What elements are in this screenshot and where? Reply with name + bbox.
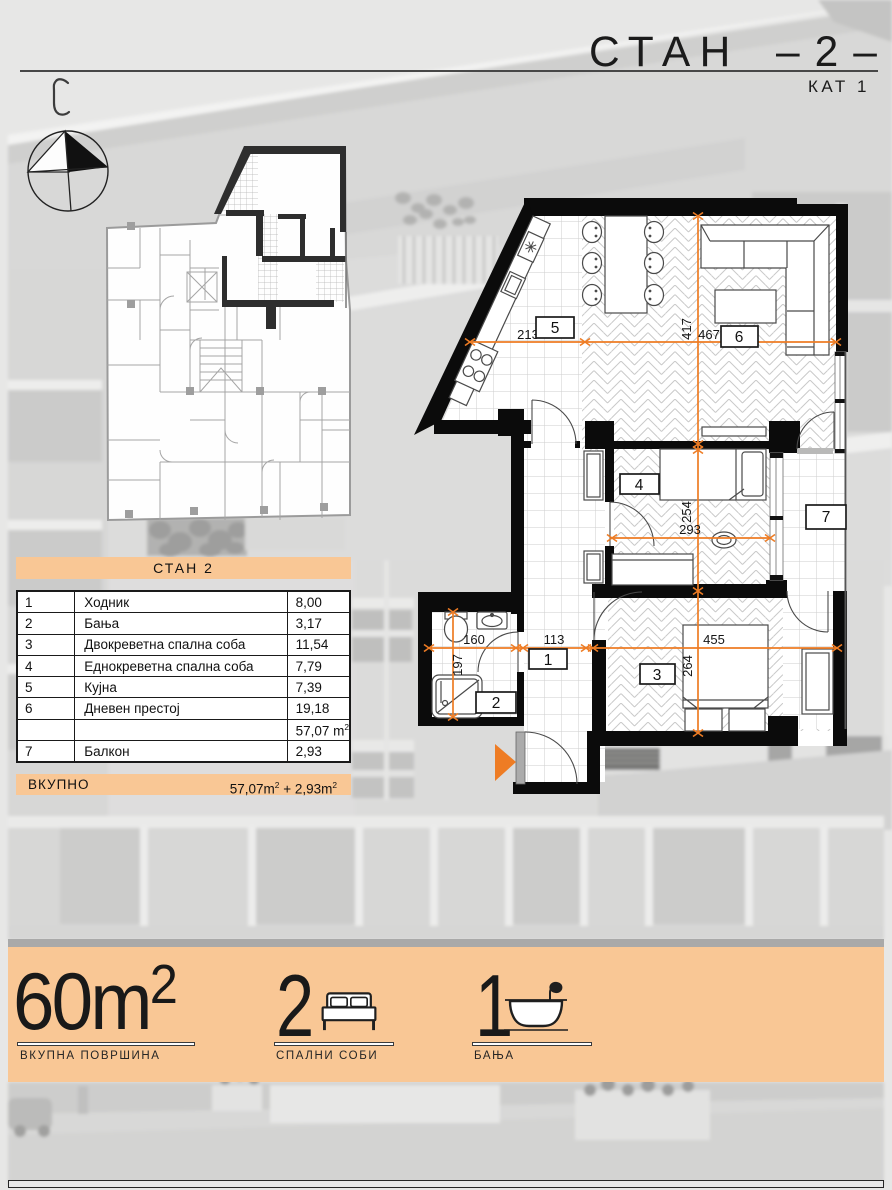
- svg-text:254: 254: [679, 501, 694, 523]
- svg-text:160: 160: [463, 632, 485, 647]
- svg-text:1: 1: [544, 652, 553, 669]
- svg-text:5: 5: [551, 320, 560, 337]
- svg-text:2: 2: [492, 695, 501, 712]
- svg-text:113: 113: [544, 632, 565, 647]
- svg-text:417: 417: [679, 318, 694, 340]
- svg-text:264: 264: [680, 655, 695, 677]
- svg-text:6: 6: [735, 329, 744, 346]
- svg-text:293: 293: [679, 522, 701, 537]
- svg-text:197: 197: [450, 654, 465, 676]
- svg-text:467: 467: [698, 327, 720, 342]
- svg-text:3: 3: [653, 667, 662, 684]
- svg-text:455: 455: [703, 632, 725, 647]
- svg-text:7: 7: [822, 509, 831, 526]
- svg-text:4: 4: [635, 477, 644, 494]
